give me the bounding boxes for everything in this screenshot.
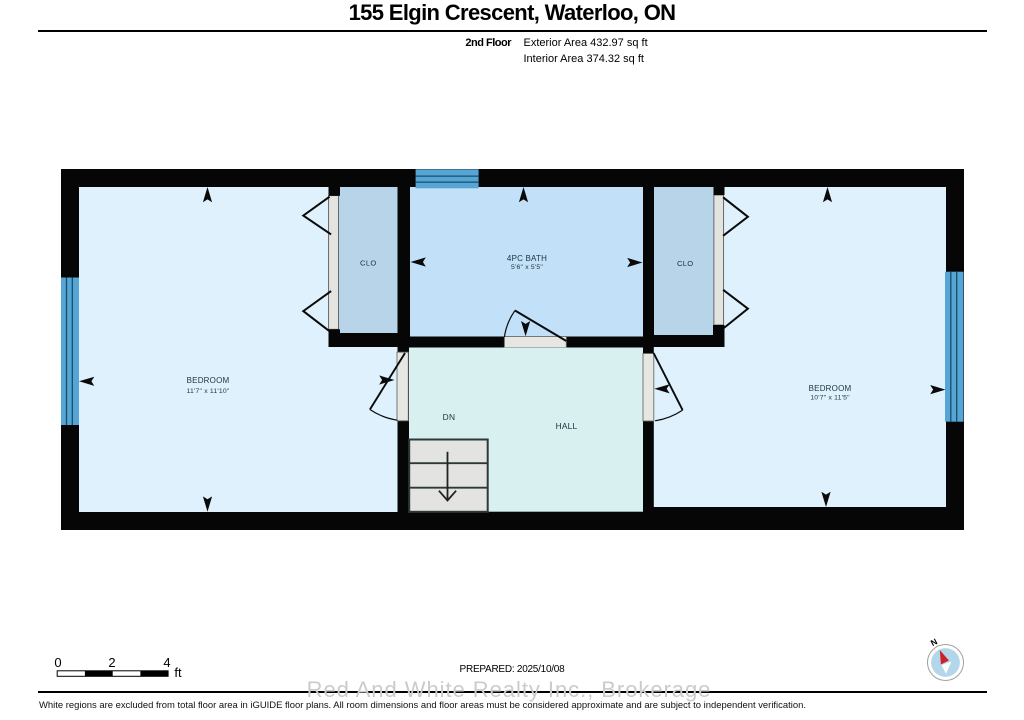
svg-text:DN: DN [443, 412, 456, 422]
svg-text:BEDROOM: BEDROOM [187, 376, 230, 385]
svg-text:CLO: CLO [677, 259, 694, 268]
svg-text:4PC BATH: 4PC BATH [507, 254, 547, 263]
svg-text:10'7" x 11'5": 10'7" x 11'5" [810, 395, 850, 402]
svg-text:11'7" x 11'10": 11'7" x 11'10" [187, 388, 230, 395]
svg-text:5'6" x 5'5": 5'6" x 5'5" [511, 264, 543, 271]
svg-text:HALL: HALL [556, 421, 578, 431]
svg-text:CLO: CLO [360, 259, 377, 268]
svg-text:BEDROOM: BEDROOM [809, 384, 852, 393]
